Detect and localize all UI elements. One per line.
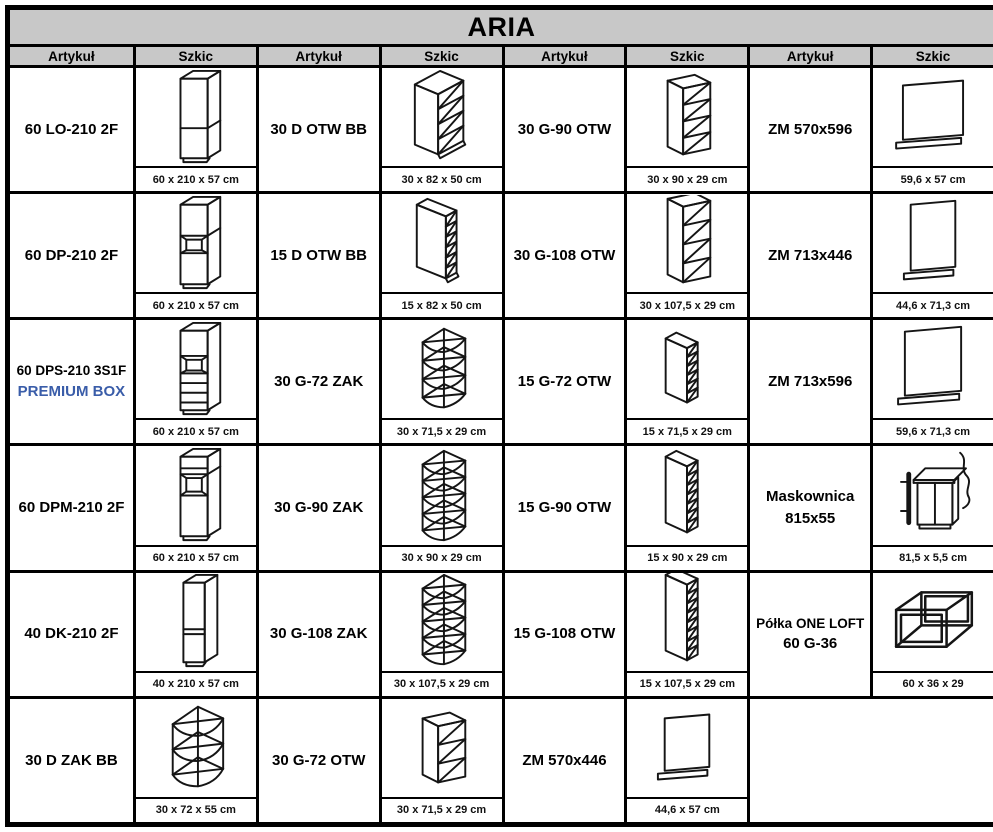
dimensions-label: 30 x 82 x 50 cm — [382, 166, 502, 191]
sketch-drawing — [873, 446, 993, 544]
sketch-drawing — [136, 320, 256, 418]
sketch-drawing — [627, 699, 747, 797]
dimensions-label: 15 x 107,5 x 29 cm — [627, 671, 747, 696]
dimensions-label: 44,6 x 71,3 cm — [873, 292, 993, 317]
article-cell: 30 G-108 OTW — [502, 191, 625, 317]
sketch-cell: 15 x 71,5 x 29 cm — [624, 317, 747, 443]
cover-strip-icon — [874, 447, 992, 544]
article-cell: 30 G-72 OTW — [256, 696, 379, 822]
end-panel-wide-icon — [874, 69, 992, 166]
article-cell: 60 DP-210 2F — [10, 191, 133, 317]
catalog-page: ARIA ArtykułSzkicArtykułSzkicArtykułSzki… — [0, 0, 993, 832]
sketch-cell: 60 x 210 x 57 cm — [133, 317, 256, 443]
sketch-drawing — [873, 68, 993, 166]
article-code: 30 G-90 ZAK — [274, 497, 363, 519]
dimensions-label: 30 x 90 x 29 cm — [627, 166, 747, 191]
sketch-drawing — [627, 194, 747, 292]
article-code: 60 DPM-210 2F — [18, 497, 124, 519]
wall-open-4-icon — [628, 69, 746, 166]
sketch-drawing — [627, 446, 747, 544]
sketch-cell: 59,6 x 57 cm — [870, 65, 993, 191]
article-code: 30 G-108 ZAK — [270, 623, 368, 645]
sketch-drawing — [382, 446, 502, 544]
corner-shelf-4-icon — [383, 321, 501, 418]
sketch-cell: 60 x 210 x 57 cm — [133, 443, 256, 569]
sketch-cell: 30 x 90 x 29 cm — [624, 65, 747, 191]
corner-shelf-5-tall-icon — [383, 573, 501, 670]
dimensions-label: 81,5 x 5,5 cm — [873, 545, 993, 570]
article-code: ZM 713x446 — [768, 245, 852, 267]
article-cell: 40 DK-210 2F — [10, 570, 133, 696]
end-panel-small-icon — [628, 699, 746, 796]
article-subtitle: 815x55 — [785, 508, 835, 530]
sketch-cell: 30 x 82 x 50 cm — [379, 65, 502, 191]
article-cell: 30 D OTW BB — [256, 65, 379, 191]
dimensions-label: 30 x 71,5 x 29 cm — [382, 418, 502, 443]
article-cell: Półka ONE LOFT60 G-36 — [747, 570, 870, 696]
tall-cabinet-2f-icon — [137, 69, 255, 166]
sketch-drawing — [873, 194, 993, 292]
wall-open-narrow-6-icon — [628, 321, 746, 418]
article-code: 15 D OTW BB — [270, 245, 367, 267]
article-code: Półka ONE LOFT — [756, 614, 864, 634]
article-cell: ZM 713x446 — [747, 191, 870, 317]
sketch-drawing — [382, 194, 502, 292]
column-header-artykul: Artykuł — [10, 44, 133, 65]
column-header-szkic: Szkic — [133, 44, 256, 65]
sketch-cell: 44,6 x 71,3 cm — [870, 191, 993, 317]
article-cell: 15 G-108 OTW — [502, 570, 625, 696]
article-code: ZM 713x596 — [768, 371, 852, 393]
sketch-drawing — [382, 573, 502, 671]
article-cell: 60 DPS-210 3S1FPREMIUM BOX — [10, 317, 133, 443]
article-cell: 30 D ZAK BB — [10, 696, 133, 822]
wall-open-narrow-7-icon — [628, 447, 746, 544]
sketch-drawing — [873, 320, 993, 418]
article-code: 30 G-108 OTW — [514, 245, 616, 267]
frame-shelf-icon — [874, 573, 992, 670]
wall-open-narrow-8-icon — [628, 573, 746, 670]
article-cell: ZM 713x596 — [747, 317, 870, 443]
article-code: 30 G-90 OTW — [518, 119, 611, 141]
dimensions-label: 60 x 210 x 57 cm — [136, 545, 256, 570]
sketch-cell: 15 x 82 x 50 cm — [379, 191, 502, 317]
end-panel-tall-wide-icon — [874, 321, 992, 418]
dimensions-label: 44,6 x 57 cm — [627, 797, 747, 822]
column-header-szkic: Szkic — [624, 44, 747, 65]
article-subtitle: 60 G-36 — [783, 633, 837, 655]
article-code: 60 DP-210 2F — [25, 245, 118, 267]
dimensions-label: 15 x 90 x 29 cm — [627, 545, 747, 570]
column-header-artykul: Artykuł — [256, 44, 379, 65]
sketch-cell: 40 x 210 x 57 cm — [133, 570, 256, 696]
article-code: 30 D ZAK BB — [25, 750, 118, 772]
sketch-cell: 60 x 210 x 57 cm — [133, 191, 256, 317]
sketch-cell: 81,5 x 5,5 cm — [870, 443, 993, 569]
article-code: 15 G-72 OTW — [518, 371, 611, 393]
sketch-drawing — [136, 194, 256, 292]
article-subtitle: PREMIUM BOX — [18, 381, 126, 403]
dimensions-label: 30 x 71,5 x 29 cm — [382, 797, 502, 822]
sketch-drawing — [627, 320, 747, 418]
article-code: Maskownica — [766, 486, 854, 508]
wall-open-4-tall-icon — [628, 195, 746, 292]
sketch-drawing — [382, 699, 502, 797]
article-cell: ZM 570x596 — [747, 65, 870, 191]
dimensions-label: 60 x 210 x 57 cm — [136, 166, 256, 191]
tall-cabinet-oven-drawers-icon — [137, 321, 255, 418]
article-code: ZM 570x596 — [768, 119, 852, 141]
column-header-artykul: Artykuł — [747, 44, 870, 65]
article-code: 60 LO-210 2F — [25, 119, 118, 141]
dimensions-label: 15 x 82 x 50 cm — [382, 292, 502, 317]
sketch-cell: 60 x 210 x 57 cm — [133, 65, 256, 191]
sketch-cell: 30 x 71,5 x 29 cm — [379, 696, 502, 822]
sketch-cell: 30 x 72 x 55 cm — [133, 696, 256, 822]
tall-cabinet-2f-narrow-icon — [137, 573, 255, 670]
dimensions-label: 59,6 x 57 cm — [873, 166, 993, 191]
empty-cell — [747, 696, 993, 822]
article-cell: ZM 570x446 — [502, 696, 625, 822]
article-code: 40 DK-210 2F — [24, 623, 118, 645]
sketch-cell: 15 x 90 x 29 cm — [624, 443, 747, 569]
article-cell: 15 G-90 OTW — [502, 443, 625, 569]
sketch-cell: 44,6 x 57 cm — [624, 696, 747, 822]
sketch-cell: 60 x 36 x 29 — [870, 570, 993, 696]
dimensions-label: 15 x 71,5 x 29 cm — [627, 418, 747, 443]
article-cell: 60 LO-210 2F — [10, 65, 133, 191]
article-cell: 30 G-72 ZAK — [256, 317, 379, 443]
sketch-drawing — [382, 320, 502, 418]
corner-shelf-5-icon — [383, 447, 501, 544]
article-code: 15 G-108 OTW — [514, 623, 616, 645]
article-code: 30 G-72 OTW — [272, 750, 365, 772]
sketch-cell: 30 x 107,5 x 29 cm — [379, 570, 502, 696]
sketch-drawing — [136, 699, 256, 797]
sketch-cell: 15 x 107,5 x 29 cm — [624, 570, 747, 696]
end-panel-tall-narrow-icon — [874, 195, 992, 292]
sketch-cell: 59,6 x 71,3 cm — [870, 317, 993, 443]
column-header-szkic: Szkic — [870, 44, 993, 65]
base-open-narrow-icon — [383, 195, 501, 292]
column-header-szkic: Szkic — [379, 44, 502, 65]
dimensions-label: 60 x 210 x 57 cm — [136, 418, 256, 443]
dimensions-label: 30 x 107,5 x 29 cm — [382, 671, 502, 696]
base-open-shelves-icon — [383, 69, 501, 166]
sketch-drawing — [627, 573, 747, 671]
catalog-table: ARIA ArtykułSzkicArtykułSzkicArtykułSzki… — [5, 5, 993, 827]
dimensions-label: 59,6 x 71,3 cm — [873, 418, 993, 443]
sketch-drawing — [873, 573, 993, 671]
tall-cabinet-oven-icon — [137, 195, 255, 292]
article-code: 30 D OTW BB — [270, 119, 367, 141]
sketch-drawing — [382, 68, 502, 166]
tall-cabinet-microwave-icon — [137, 447, 255, 544]
dimensions-label: 30 x 107,5 x 29 cm — [627, 292, 747, 317]
sketch-drawing — [136, 573, 256, 671]
article-code: 60 DPS-210 3S1F — [17, 361, 127, 381]
column-header-artykul: Artykuł — [502, 44, 625, 65]
sketch-cell: 30 x 90 x 29 cm — [379, 443, 502, 569]
dimensions-label: 30 x 72 x 55 cm — [136, 797, 256, 822]
sketch-drawing — [136, 446, 256, 544]
dimensions-label: 60 x 210 x 57 cm — [136, 292, 256, 317]
article-cell: 30 G-90 ZAK — [256, 443, 379, 569]
article-cell: 15 G-72 OTW — [502, 317, 625, 443]
dimensions-label: 30 x 90 x 29 cm — [382, 545, 502, 570]
catalog-title: ARIA — [10, 10, 993, 44]
sketch-drawing — [136, 68, 256, 166]
dimensions-label: 60 x 36 x 29 — [873, 671, 993, 696]
article-code: 30 G-72 ZAK — [274, 371, 363, 393]
sketch-cell: 30 x 107,5 x 29 cm — [624, 191, 747, 317]
article-cell: 15 D OTW BB — [256, 191, 379, 317]
sketch-cell: 30 x 71,5 x 29 cm — [379, 317, 502, 443]
article-cell: 30 G-90 OTW — [502, 65, 625, 191]
sketch-drawing — [627, 68, 747, 166]
corner-base-shelf-icon — [137, 699, 255, 796]
article-code: 15 G-90 OTW — [518, 497, 611, 519]
article-cell: 60 DPM-210 2F — [10, 443, 133, 569]
article-cell: 30 G-108 ZAK — [256, 570, 379, 696]
article-cell: Maskownica815x55 — [747, 443, 870, 569]
wall-open-3-icon — [383, 699, 501, 796]
article-code: ZM 570x446 — [522, 750, 606, 772]
dimensions-label: 40 x 210 x 57 cm — [136, 671, 256, 696]
